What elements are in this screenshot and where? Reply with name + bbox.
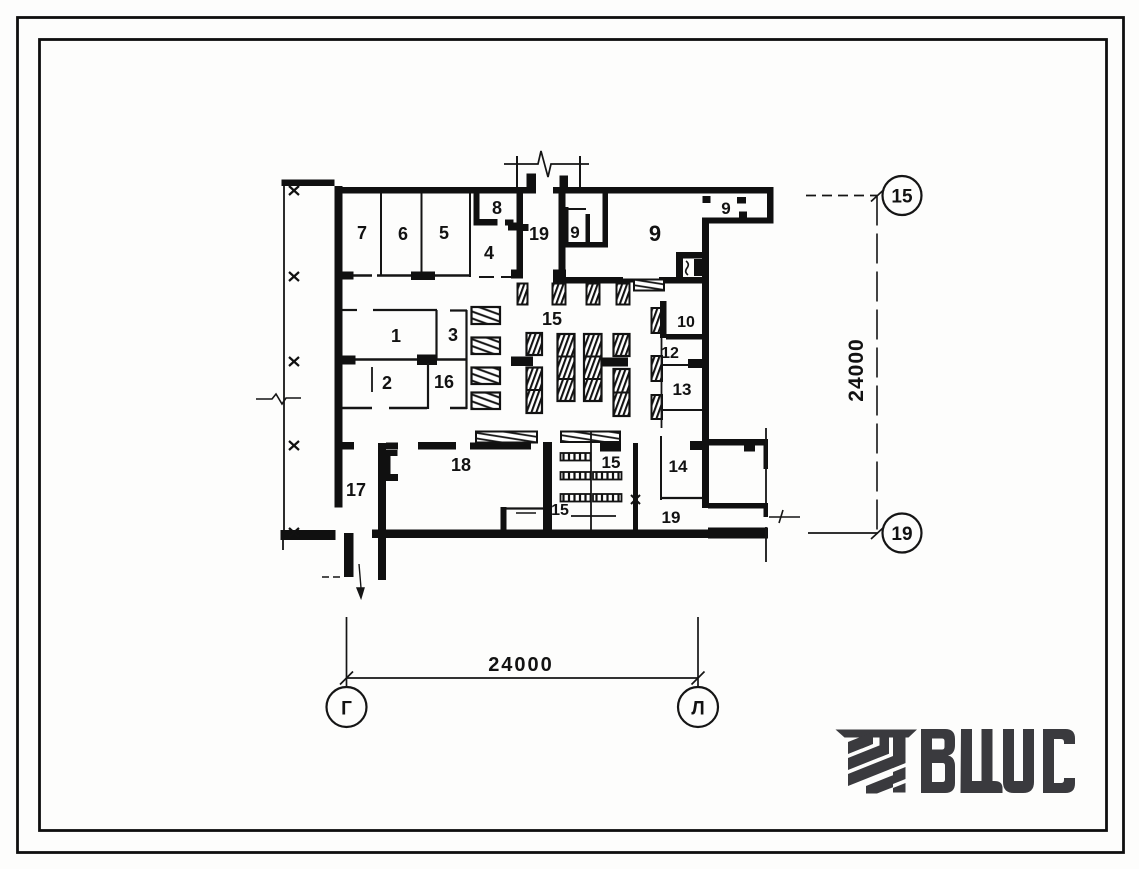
svg-text:2: 2: [382, 373, 392, 393]
svg-text:7: 7: [357, 223, 367, 243]
svg-text:15: 15: [602, 453, 621, 472]
svg-text:24000: 24000: [845, 338, 868, 401]
svg-text:15: 15: [551, 502, 569, 519]
svg-text:9: 9: [721, 199, 730, 218]
svg-text:15: 15: [891, 187, 913, 208]
svg-text:Г: Г: [341, 699, 352, 720]
svg-text:1: 1: [391, 326, 401, 346]
svg-text:17: 17: [346, 480, 366, 500]
svg-text:19: 19: [529, 224, 549, 244]
svg-text:Л: Л: [691, 699, 704, 720]
svg-text:24000: 24000: [488, 654, 554, 676]
svg-text:14: 14: [669, 457, 688, 476]
svg-text:9: 9: [649, 221, 661, 246]
svg-text:15: 15: [542, 309, 562, 329]
svg-text:19: 19: [891, 524, 912, 545]
svg-text:6: 6: [398, 224, 408, 244]
svg-text:9: 9: [570, 223, 579, 242]
svg-text:13: 13: [673, 380, 692, 399]
svg-text:3: 3: [448, 325, 458, 345]
svg-text:18: 18: [451, 455, 471, 475]
svg-text:12: 12: [661, 345, 679, 362]
svg-text:5: 5: [439, 223, 449, 243]
svg-text:4: 4: [484, 243, 494, 263]
svg-text:16: 16: [434, 372, 454, 392]
svg-text:8: 8: [492, 198, 502, 218]
svg-text:10: 10: [677, 314, 695, 331]
svg-text:19: 19: [662, 508, 681, 527]
